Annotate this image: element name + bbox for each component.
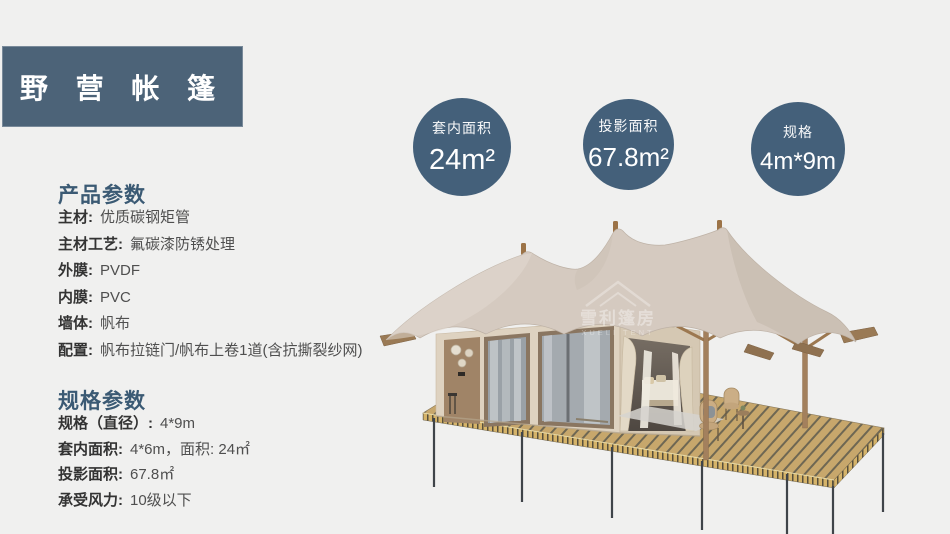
- param-label: 外膜:: [58, 262, 93, 279]
- param-value: 67.8㎡: [130, 466, 174, 483]
- param-label: 墙体:: [58, 315, 93, 332]
- param-label: 承受风力:: [58, 492, 123, 509]
- param-row: 墙体:帆布: [58, 315, 363, 334]
- param-label: 规格（直径）:: [58, 415, 153, 432]
- spec-params-heading: 规格参数: [58, 385, 146, 415]
- param-value: PVDF: [100, 262, 140, 279]
- param-value: 帆布: [100, 315, 130, 332]
- param-value: 优质碳钢矩管: [100, 209, 190, 226]
- param-label: 主材:: [58, 209, 93, 226]
- title-banner: 野 营 帐 篷: [2, 46, 243, 127]
- page: 野 营 帐 篷 套内面积 24m² 投影面积 67.8m² 规格 4m*9m 产…: [0, 0, 950, 534]
- param-row: 规格（直径）:4*9m: [58, 415, 250, 434]
- param-row: 外膜:PVDF: [58, 262, 363, 281]
- product-params-heading: 产品参数: [58, 179, 146, 209]
- param-row: 投影面积:67.8㎡: [58, 466, 250, 485]
- param-row: 内膜:PVC: [58, 289, 363, 308]
- param-label: 主材工艺:: [58, 236, 123, 253]
- param-value: 4*9m: [160, 415, 195, 432]
- stat-circle-projection-area: 投影面积 67.8m²: [583, 99, 674, 190]
- param-label: 投影面积:: [58, 466, 123, 483]
- watermark-en-text: XUELI TENT: [581, 328, 654, 337]
- stat-label: 投影面积: [599, 116, 659, 136]
- stat-label: 套内面积: [432, 118, 492, 138]
- stat-value: 67.8m²: [588, 142, 669, 173]
- stat-circle-inner-area: 套内面积 24m²: [413, 98, 511, 196]
- param-row: 配置:帆布拉链门/帆布上卷1道(含抗撕裂纱网): [58, 342, 363, 361]
- param-label: 配置:: [58, 342, 93, 359]
- tent-render: 雪利篷房 XUELI TENT: [372, 200, 947, 534]
- param-row: 主材:优质碳钢矩管: [58, 209, 363, 228]
- param-row: 承受风力:10级以下: [58, 492, 250, 511]
- param-value: 4*6m，面积: 24㎡: [130, 441, 250, 458]
- param-label: 套内面积:: [58, 441, 123, 458]
- param-row: 套内面积:4*6m，面积: 24㎡: [58, 441, 250, 460]
- param-label: 内膜:: [58, 289, 93, 306]
- stat-circle-size: 规格 4m*9m: [751, 102, 845, 196]
- stat-label: 规格: [783, 122, 813, 142]
- page-title: 野 营 帐 篷: [20, 67, 225, 107]
- param-value: 氟碳漆防锈处理: [130, 236, 235, 253]
- stat-value: 24m²: [429, 144, 495, 177]
- param-value: PVC: [100, 289, 131, 306]
- param-value: 10级以下: [130, 492, 192, 509]
- param-value: 帆布拉链门/帆布上卷1道(含抗撕裂纱网): [100, 342, 363, 359]
- spec-params-list: 规格（直径）:4*9m 套内面积:4*6m，面积: 24㎡ 投影面积:67.8㎡…: [58, 415, 250, 510]
- param-row: 主材工艺:氟碳漆防锈处理: [58, 236, 363, 255]
- product-params-list: 主材:优质碳钢矩管 主材工艺:氟碳漆防锈处理 外膜:PVDF 内膜:PVC 墙体…: [58, 209, 363, 360]
- watermark-cn-text: 雪利篷房: [580, 308, 656, 328]
- stat-value: 4m*9m: [760, 148, 836, 176]
